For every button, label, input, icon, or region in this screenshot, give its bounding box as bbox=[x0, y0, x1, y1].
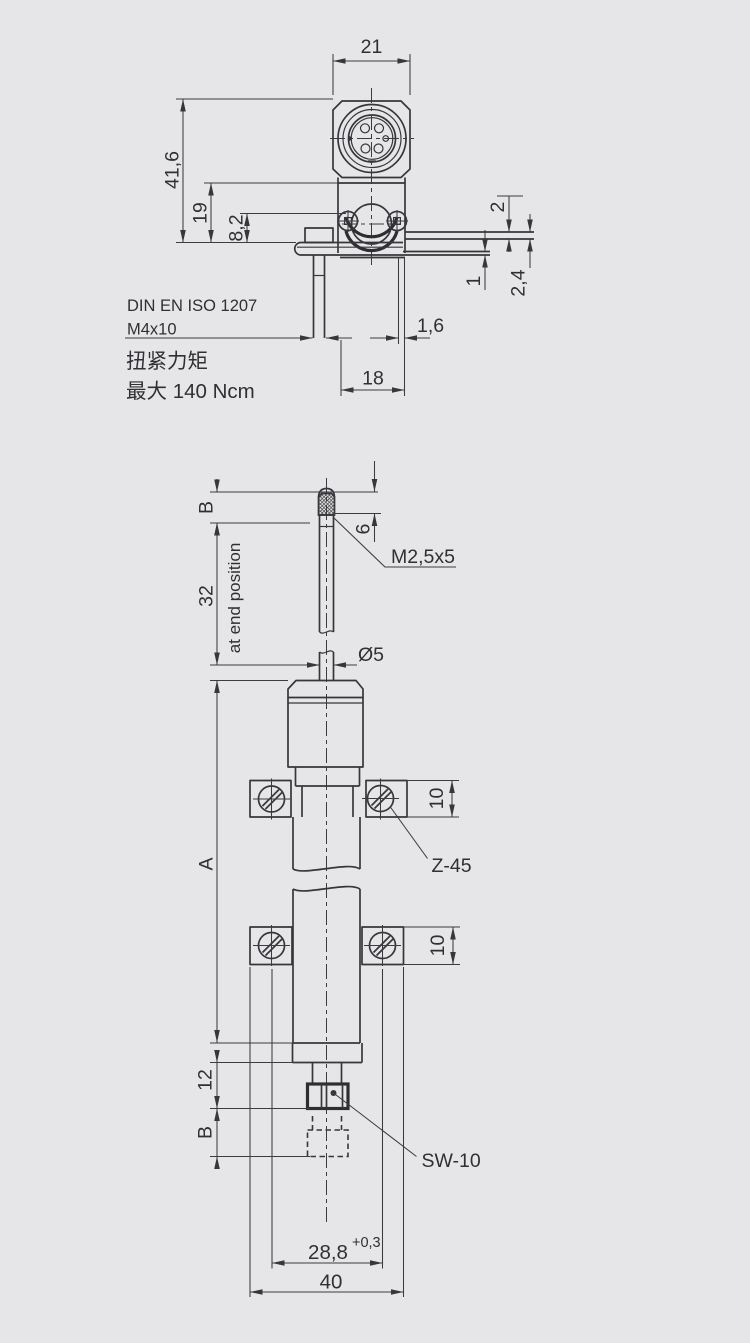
dim-18-label: 18 bbox=[362, 368, 384, 390]
bottom-end-assembly bbox=[293, 1043, 363, 1157]
top-view-notes: DIN EN ISO 1207 M4x10 扭紧力矩 最大 140 Ncm bbox=[126, 297, 257, 403]
upper-clamp-screw-right bbox=[362, 779, 399, 820]
dim-2-4-label: 2,4 bbox=[508, 269, 530, 296]
dim-41-6-label: 41,6 bbox=[162, 151, 184, 189]
top-view-drawing: 21 41,6 19 8,2 2 2,4 1 bbox=[125, 36, 534, 403]
dim-28-8-tolerance-label: +0,3 bbox=[352, 1235, 381, 1251]
wrench-size-label: SW-10 bbox=[422, 1150, 481, 1172]
knurled-thread-tip bbox=[319, 494, 335, 516]
dim-1-6-label: 1,6 bbox=[417, 315, 444, 337]
dim-rod-diameter-label: Ø5 bbox=[358, 644, 384, 666]
upper-clamp bbox=[250, 779, 407, 820]
note-torque-value: 最大 140 Ncm bbox=[126, 380, 255, 403]
lower-clamp-screw-right bbox=[364, 925, 401, 966]
sensor-dimension-drawing: 21 41,6 19 8,2 2 2,4 1 bbox=[0, 0, 750, 1343]
m4-screw-shaft bbox=[314, 255, 325, 338]
dim-10-upper-label: 10 bbox=[426, 788, 448, 810]
side-view-dimensions: B 6 32 at end position Ø5 A 10 bbox=[195, 461, 461, 1297]
dim-b-top-label: B bbox=[196, 501, 218, 514]
end-position-phantom bbox=[308, 1116, 349, 1157]
note-torque-title: 扭紧力矩 bbox=[126, 350, 208, 373]
dim-28-8-label: 28,8 bbox=[308, 1241, 348, 1264]
hex-adjustment-nut bbox=[308, 1084, 349, 1109]
dim-b-bottom-label: B bbox=[195, 1126, 217, 1139]
dim-19-label: 19 bbox=[190, 202, 212, 224]
dim-2-label: 2 bbox=[487, 202, 509, 213]
side-view-leaders: M2,5x5 Z-45 SW-10 bbox=[331, 518, 481, 1172]
note-din-standard: DIN EN ISO 1207 bbox=[127, 297, 257, 315]
dim-1-label: 1 bbox=[463, 276, 485, 287]
dim-12-label: 12 bbox=[195, 1069, 217, 1091]
dim-a-label: A bbox=[196, 857, 218, 870]
dim-8-2-label: 8,2 bbox=[226, 214, 248, 241]
clamp-type-label: Z-45 bbox=[432, 855, 472, 877]
lower-clamp-screw-left bbox=[253, 925, 290, 966]
note-screw-size: M4x10 bbox=[127, 321, 177, 339]
dim-6-label: 6 bbox=[353, 524, 375, 535]
thread-size-label: M2,5x5 bbox=[391, 546, 455, 568]
end-position-note: at end position bbox=[225, 543, 244, 654]
side-view-drawing: M2,5x5 Z-45 SW-10 B 6 32 at end position bbox=[195, 461, 481, 1297]
top-view-dimensions: 21 41,6 19 8,2 2 2,4 1 bbox=[125, 36, 530, 396]
rod-clamp-section bbox=[295, 204, 534, 338]
dim-40-label: 40 bbox=[320, 1271, 343, 1294]
sensor-head bbox=[288, 681, 363, 818]
dim-21-label: 21 bbox=[361, 36, 383, 58]
technical-drawing-page: 21 41,6 19 8,2 2 2,4 1 bbox=[0, 0, 750, 1343]
dim-32-label: 32 bbox=[196, 585, 218, 607]
mounting-blade bbox=[403, 232, 534, 255]
dim-10-lower-label: 10 bbox=[427, 935, 449, 957]
upper-clamp-screw-left bbox=[253, 779, 290, 820]
